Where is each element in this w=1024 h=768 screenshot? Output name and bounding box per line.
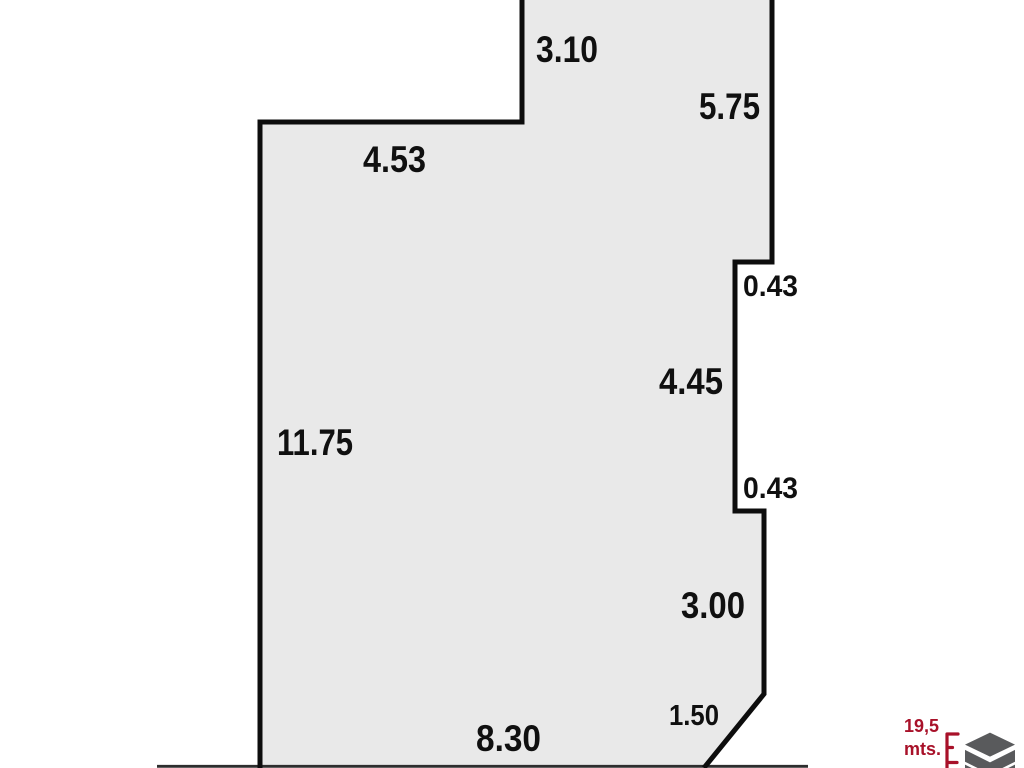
svg-text:3.10: 3.10 (536, 29, 598, 70)
svg-text:1.50: 1.50 (669, 700, 719, 732)
svg-text:mts.: mts. (904, 738, 941, 759)
svg-text:19,5: 19,5 (904, 715, 939, 736)
svg-text:5.75: 5.75 (699, 86, 760, 127)
svg-text:0.43: 0.43 (743, 472, 798, 505)
svg-text:4.45: 4.45 (659, 361, 723, 402)
svg-text:0.43: 0.43 (743, 270, 798, 303)
svg-text:3.00: 3.00 (681, 585, 745, 626)
svg-text:11.75: 11.75 (277, 422, 353, 463)
svg-text:8.30: 8.30 (476, 718, 541, 759)
svg-text:4.53: 4.53 (363, 139, 426, 180)
